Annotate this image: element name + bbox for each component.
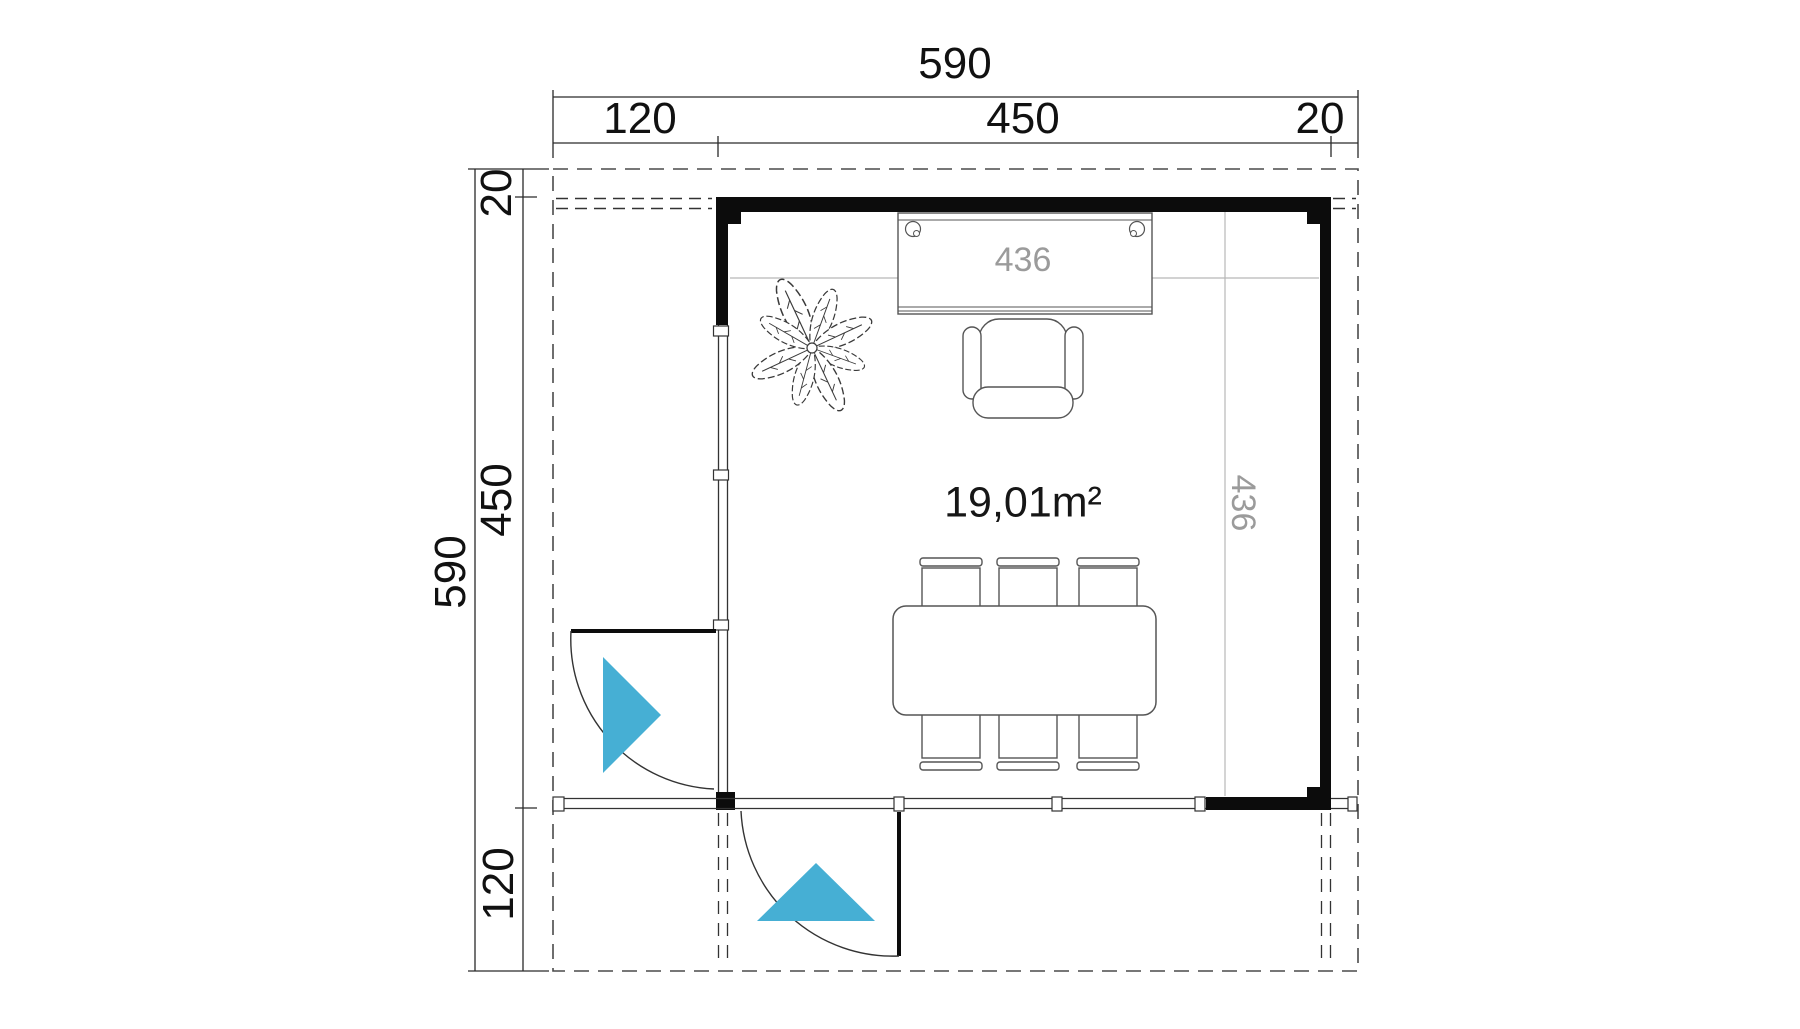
dining-set (893, 558, 1156, 770)
bottom-wall-windows (553, 797, 1357, 811)
side-door (571, 631, 716, 789)
dim-left-120: 120 (477, 847, 521, 920)
floor-plan-drawing (0, 0, 1800, 1029)
dim-top-450: 450 (986, 97, 1059, 141)
dim-left-total: 590 (429, 535, 473, 608)
front-door-swing-arrow (757, 863, 875, 921)
dim-interior-width: 436 (995, 243, 1052, 277)
dim-left-20: 20 (475, 169, 519, 218)
front-door (741, 811, 899, 956)
dim-top-20: 20 (1296, 97, 1345, 141)
floor-plan-canvas: 590 120 450 20 590 20 450 120 436 436 19… (0, 0, 1800, 1029)
room-area-label: 19,01m² (944, 482, 1102, 525)
side-door-swing-arrow (603, 657, 661, 773)
dim-interior-height: 436 (1226, 475, 1260, 532)
left-wall-windows (714, 325, 729, 792)
plant (748, 275, 876, 416)
office-chair (963, 319, 1083, 418)
dining-table (893, 606, 1156, 715)
dim-top-total: 590 (918, 42, 991, 86)
dim-left-450: 450 (475, 463, 519, 536)
dim-top-120: 120 (603, 97, 676, 141)
